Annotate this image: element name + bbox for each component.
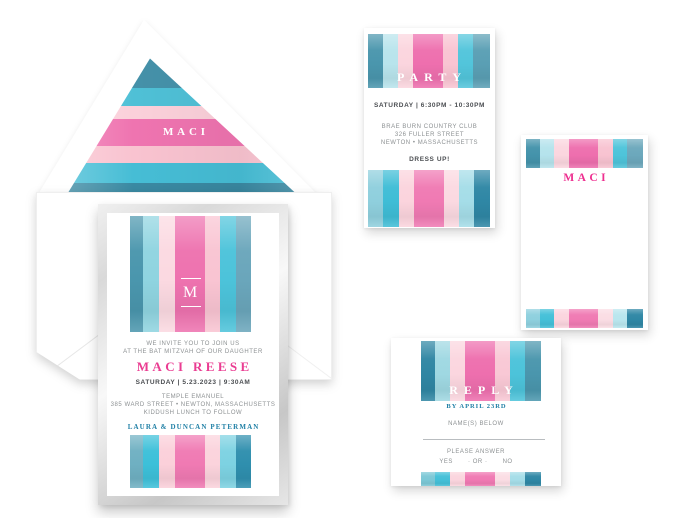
invitation-hosts: LAURA & DUNCAN PETERMAN [107, 423, 279, 432]
watercolor-stripe [399, 170, 414, 227]
invitation-top-stripes: M [130, 216, 251, 332]
reply-option-or: · OR · [468, 458, 488, 466]
watercolor-stripe [526, 139, 540, 168]
watercolor-stripe [143, 435, 159, 488]
party-venue: BRAE BURN COUNTRY CLUB [364, 123, 495, 131]
watercolor-stripe [58, 106, 310, 119]
invitation-venue: TEMPLE EMANUEL [107, 393, 279, 401]
watercolor-stripe [175, 435, 205, 488]
watercolor-stripe [414, 170, 444, 227]
watercolor-stripe [627, 309, 643, 328]
invitation-card: M WE INVITE YOU TO JOIN US AT THE BAT MI… [98, 204, 288, 505]
watercolor-stripe [130, 216, 143, 332]
invitation-honoree-name: MACI REESE [107, 359, 279, 374]
invitation-note: KIDDUSH LUNCH TO FOLLOW [107, 409, 279, 417]
watercolor-stripe [421, 472, 435, 486]
invitation-monogram: M [130, 278, 251, 307]
party-address: 326 FULLER STREET [364, 131, 495, 139]
watercolor-stripe [58, 88, 310, 106]
watercolor-stripe [540, 309, 555, 328]
watercolor-stripe [58, 183, 310, 203]
party-datetime: SATURDAY | 6:30PM - 10:30PM [364, 102, 495, 110]
watercolor-stripe [58, 57, 310, 88]
envelope-liner: MACI [58, 57, 310, 203]
watercolor-stripe [569, 309, 598, 328]
invitation-datetime: SATURDAY | 5.23.2023 | 9:30AM [107, 379, 279, 387]
watercolor-stripe [143, 216, 159, 332]
watercolor-stripe [58, 163, 310, 183]
watercolor-stripe [540, 139, 555, 168]
reply-deadline: BY APRIL 23RD [391, 403, 561, 411]
reply-option-yes: YES [439, 458, 453, 466]
watercolor-stripe [130, 435, 143, 488]
watercolor-stripe [175, 216, 205, 332]
watercolor-stripe [220, 435, 236, 488]
watercolor-stripe [368, 170, 383, 227]
note-top-stripes [526, 139, 643, 168]
watercolor-stripe [495, 472, 510, 486]
watercolor-stripe [236, 216, 251, 332]
invitation-intro-line1: WE INVITE YOU TO JOIN US [107, 340, 279, 348]
watercolor-stripe [510, 472, 525, 486]
invitation-bottom-stripes [130, 435, 251, 488]
monogram-rule-top [181, 278, 201, 279]
reply-card: REPLY BY APRIL 23RD NAME(S) BELOW PLEASE… [391, 338, 561, 486]
note-card-name: MACI [521, 172, 648, 185]
note-card: MACI [521, 135, 648, 330]
reply-bottom-stripes [421, 472, 541, 486]
reply-answer-options: YES · OR · NO [391, 458, 561, 466]
watercolor-stripe [474, 170, 490, 227]
party-venue-block: BRAE BURN COUNTRY CLUB 326 FULLER STREET… [364, 123, 495, 147]
reply-answer-label: PLEASE ANSWER [391, 448, 561, 456]
watercolor-stripe [205, 435, 220, 488]
reply-write-in-line [423, 439, 545, 440]
party-title: PARTY [368, 71, 490, 84]
watercolor-stripe [450, 472, 465, 486]
reply-title: REPLY [421, 384, 541, 397]
watercolor-stripe [554, 309, 569, 328]
invitation-address: 385 WARD STREET • NEWTON, MASSACHUSETTS [107, 401, 279, 409]
watercolor-stripe [613, 309, 628, 328]
party-city: NEWTON • MASSACHUSETTS [364, 139, 495, 147]
watercolor-stripe [465, 472, 495, 486]
watercolor-stripe [613, 139, 628, 168]
party-top-stripes: PARTY [368, 34, 490, 88]
watercolor-stripe [220, 216, 236, 332]
envelope-liner-monogram: MACI [58, 126, 310, 138]
watercolor-stripe [159, 216, 175, 332]
watercolor-stripe [598, 309, 613, 328]
invitation-intro-line2: AT THE BAT MITZVAH OF OUR DAUGHTER [107, 348, 279, 356]
invitation-intro: WE INVITE YOU TO JOIN US AT THE BAT MITZ… [107, 340, 279, 356]
monogram-letter: M [183, 284, 198, 301]
watercolor-stripe [459, 170, 474, 227]
watercolor-stripe [627, 139, 643, 168]
watercolor-stripe [598, 139, 613, 168]
party-note: DRESS UP! [364, 156, 495, 164]
watercolor-stripe [525, 472, 541, 486]
watercolor-stripe [554, 139, 569, 168]
party-card: PARTY SATURDAY | 6:30PM - 10:30PM BRAE B… [364, 28, 495, 228]
watercolor-stripe [435, 472, 450, 486]
party-bottom-stripes [368, 170, 490, 227]
stationery-suite-scene: MACI M WE INVITE YOU TO JOIN US AT THE B… [0, 0, 690, 518]
watercolor-stripe [159, 435, 175, 488]
watercolor-stripe [236, 435, 251, 488]
invitation-venue-block: TEMPLE EMANUEL 385 WARD STREET • NEWTON,… [107, 393, 279, 417]
watercolor-stripe [444, 170, 459, 227]
reply-top-stripes: REPLY [421, 341, 541, 401]
reply-name-label: NAME(S) BELOW [391, 420, 561, 428]
watercolor-stripe [526, 309, 540, 328]
watercolor-stripe [383, 170, 399, 227]
invitation-card-face: M WE INVITE YOU TO JOIN US AT THE BAT MI… [107, 213, 279, 496]
reply-option-no: NO [503, 458, 513, 466]
watercolor-stripe [205, 216, 220, 332]
watercolor-stripe [58, 146, 310, 163]
watercolor-stripe [569, 139, 598, 168]
note-bottom-stripes [526, 309, 643, 328]
monogram-rule-bottom [181, 306, 201, 307]
